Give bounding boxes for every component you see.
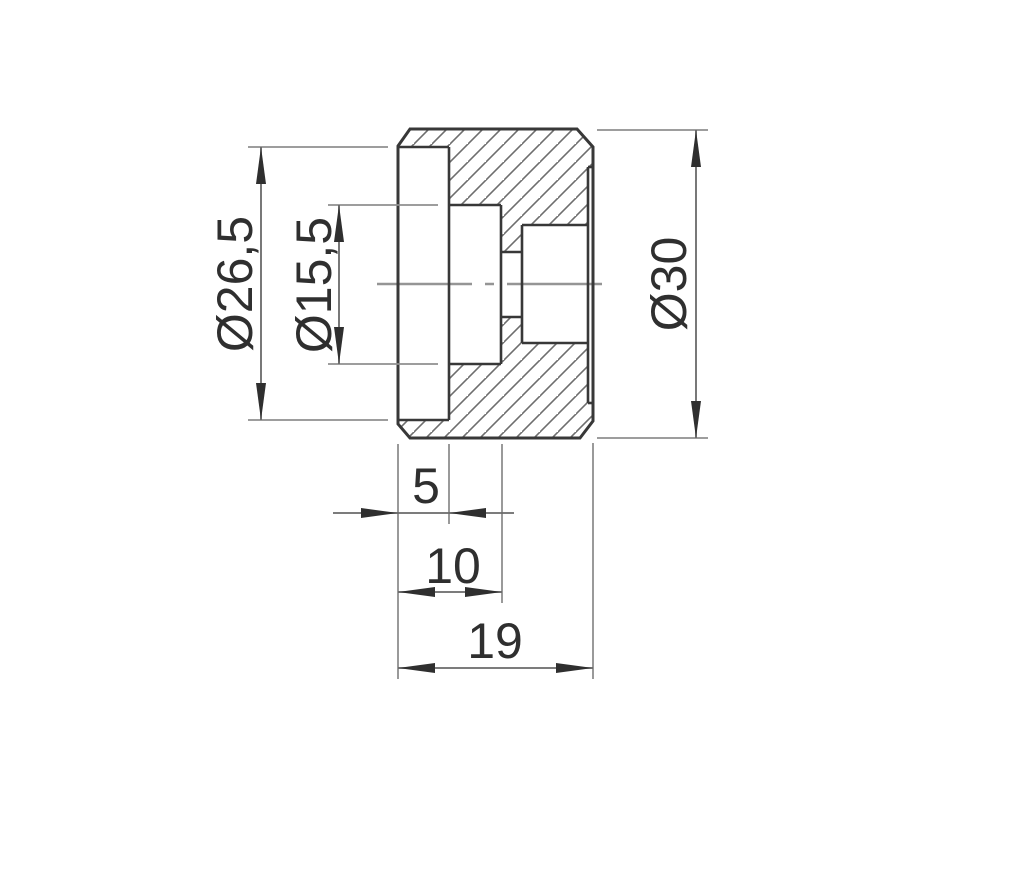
label-bore-depth: 10 bbox=[425, 538, 481, 594]
label-inner-bore-diameter: Ø15,5 bbox=[286, 217, 342, 353]
label-counterbore-diameter: Ø26,5 bbox=[207, 216, 263, 352]
drawing-page: Ø26,5 Ø15,5 Ø30 5 10 19 bbox=[0, 0, 1024, 895]
label-outer-diameter: Ø30 bbox=[641, 237, 697, 332]
label-counterbore-depth: 5 bbox=[412, 458, 440, 514]
technical-drawing-canvas: Ø26,5 Ø15,5 Ø30 5 10 19 bbox=[0, 0, 1024, 895]
label-overall-length: 19 bbox=[467, 613, 523, 669]
